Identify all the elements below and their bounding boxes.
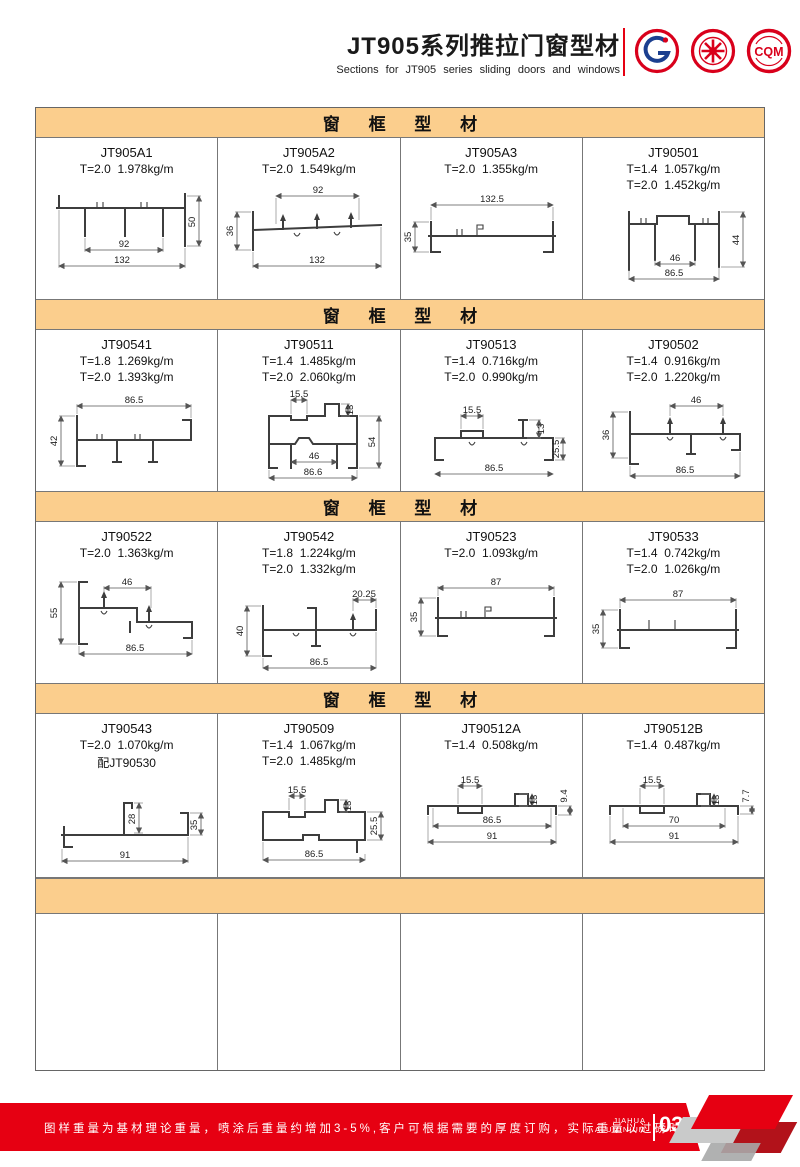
dimension-label: 87	[673, 589, 684, 600]
profile-spec: T=2.0 1.355kg/m	[401, 162, 582, 176]
profile-code: JT90522	[36, 529, 217, 544]
profile-drawing: 46 36 86.5	[583, 386, 763, 484]
dimension-label: 86.5	[124, 395, 143, 406]
profile-spec: T=2.0 2.060kg/m	[218, 370, 399, 384]
profile-spec: T=1.4 0.716kg/m	[401, 354, 582, 368]
dimension-label: 28	[127, 814, 138, 825]
profile-outline	[436, 598, 556, 636]
dimension-label: 86.6	[304, 467, 323, 478]
profile-outline	[263, 606, 376, 656]
certification-logos: CQM	[634, 28, 792, 74]
profile-cell: JT90513 T=1.4 0.716kg/m T=2.0 0.990kg/m	[401, 330, 583, 491]
profile-spec: 配JT90530	[36, 754, 217, 771]
profile-row: JT90541 T=1.8 1.269kg/m T=2.0 1.393kg/m …	[36, 330, 764, 492]
dimension-lines: 15.5 13 54 46 86.6	[269, 389, 381, 478]
profile-spec: T=2.0 0.990kg/m	[401, 370, 582, 384]
empty-row	[36, 914, 764, 1070]
dimension-label: 15.5	[463, 405, 482, 416]
profile-cell: JT90511 T=1.4 1.485kg/m T=2.0 2.060kg/m	[218, 330, 400, 491]
section-banner-empty	[36, 878, 764, 914]
section-banner: 窗 框 型 材	[36, 300, 764, 330]
profile-cell: JT905A2 T=2.0 1.549kg/m 92 36	[218, 138, 400, 299]
gb-certification-icon	[634, 28, 680, 74]
profile-spec: T=1.4 0.487kg/m	[583, 738, 764, 752]
profile-outline	[630, 412, 740, 464]
dimension-label: 35	[409, 612, 420, 623]
dimension-label: 42	[49, 436, 60, 447]
dimension-label: 132.5	[480, 194, 504, 205]
profile-cell: JT90523 T=2.0 1.093kg/m 87 35	[401, 522, 583, 683]
dimension-label: 44	[731, 235, 742, 246]
dimension-label: 46	[309, 451, 320, 462]
profile-cell: JT90512A T=1.4 0.508kg/m 15.5 13	[401, 714, 583, 877]
dimension-lines: 132.5 35	[403, 194, 553, 252]
profile-code: JT90513	[401, 337, 582, 352]
dimension-label: 35	[189, 820, 200, 831]
dimension-label: 20.25	[352, 589, 376, 600]
profile-spec: T=2.0 1.220kg/m	[583, 370, 764, 384]
dimension-label: 91	[669, 831, 680, 842]
profile-code: JT90512A	[401, 721, 582, 736]
dimension-label: 50	[187, 217, 198, 228]
profile-row: JT90543 T=2.0 1.070kg/m 配JT90530 28 35 9	[36, 714, 764, 878]
profile-outline	[79, 582, 192, 644]
dimension-lines: 15.5 13 25.5 86.5	[435, 405, 565, 474]
dimension-label: 86.5	[483, 815, 502, 826]
cqm-certification-icon: CQM	[746, 28, 792, 74]
section-banner-label: 窗 框 型 材	[311, 110, 489, 135]
dimension-label: 13	[343, 801, 354, 812]
profile-cell: JT90502 T=1.4 0.916kg/m T=2.0 1.220kg/m	[583, 330, 764, 491]
profile-drawing: 15.5 13 7.7 70 91	[583, 754, 763, 860]
profile-drawing: 15.5 13 25.5 86.5	[401, 386, 581, 484]
profile-row: JT905A1 T=2.0 1.978kg/m 92 132 50	[36, 138, 764, 300]
quality-seal-icon	[690, 28, 736, 74]
profile-spec: T=2.0 1.026kg/m	[583, 562, 764, 576]
profile-drawing: 87 35	[401, 562, 581, 668]
profile-code: JT90541	[36, 337, 217, 352]
dimension-label: 9.4	[559, 789, 570, 802]
dimension-label: 36	[601, 430, 612, 441]
footer-brand-bottom: ALUMINIUM	[584, 1125, 646, 1134]
section-banner-label: 窗 框 型 材	[311, 686, 489, 711]
profile-row: JT90522 T=2.0 1.363kg/m 46 55	[36, 522, 764, 684]
profile-drawing: 15.5 13 9.4 86.5 91	[401, 754, 581, 860]
profile-drawing: 15.5 13 54 46 86.6	[219, 386, 399, 486]
dimension-label: 25.5	[551, 440, 562, 459]
catalog-page: JT905系列推拉门窗型材 Sections for JT905 series …	[0, 0, 800, 1167]
dimension-label: 15.5	[290, 389, 309, 400]
profile-spec: T=1.8 1.224kg/m	[218, 546, 399, 560]
profile-drawing: 132.5 35	[401, 178, 581, 284]
dimension-label: 92	[118, 239, 129, 250]
footer-band: 图样重量为基材理论重量，喷涂后重量约增加3-5%,客户可根据需要的厚度订购，实际…	[0, 1103, 700, 1151]
dimension-label: 132	[114, 255, 130, 266]
footer-brand-top: JIAHUA	[584, 1116, 646, 1125]
profile-code: JT90512B	[583, 721, 764, 736]
profile-drawing: 86.5 42	[37, 386, 217, 478]
dimension-lines: 15.5 13 9.4 86.5 91	[428, 775, 572, 844]
dimension-label: 35	[403, 232, 414, 243]
profile-spec: T=2.0 1.093kg/m	[401, 546, 582, 560]
profile-drawing: 46 55 86.5	[37, 562, 217, 668]
cqm-logo-text: CQM	[754, 45, 783, 59]
profile-drawing: 15.5 13 25.5 86.5	[219, 770, 399, 870]
profile-code: JT90502	[583, 337, 764, 352]
profile-drawing: 92 36 132	[219, 178, 399, 284]
dimension-label: 36	[225, 226, 236, 237]
empty-cell	[36, 914, 218, 1070]
section-banner: 窗 框 型 材	[36, 108, 764, 138]
dimension-lines: 87 35	[591, 589, 736, 648]
dimension-label: 86.5	[485, 463, 504, 474]
dimension-lines: 15.5 13 7.7 70 91	[610, 775, 754, 844]
profile-cell: JT90533 T=1.4 0.742kg/m T=2.0 1.026kg/m …	[583, 522, 764, 683]
dimension-label: 15.5	[461, 775, 480, 786]
dimension-label: 86.5	[310, 657, 329, 668]
page-header: JT905系列推拉门窗型材 Sections for JT905 series …	[200, 26, 620, 76]
profile-catalog-table: 窗 框 型 材 JT905A1 T=2.0 1.978kg/m 9	[35, 107, 765, 1071]
profile-code: JT90533	[583, 529, 764, 544]
profile-drawing: 20.25 40 86.5	[219, 578, 399, 676]
profile-outline	[253, 212, 381, 250]
profile-code: JT90509	[218, 721, 399, 736]
profile-code: JT90542	[218, 529, 399, 544]
profile-outline	[77, 416, 191, 466]
dimension-label: 46	[691, 395, 702, 406]
dimension-label: 13	[536, 424, 547, 435]
profile-spec: T=2.0 1.452kg/m	[583, 178, 764, 192]
profile-code: JT90523	[401, 529, 582, 544]
dimension-label: 86.5	[305, 849, 324, 860]
profile-spec: T=2.0 1.070kg/m	[36, 738, 217, 752]
empty-cell	[401, 914, 583, 1070]
dimension-label: 55	[49, 608, 60, 619]
profile-code: JT905A1	[36, 145, 217, 160]
dimension-label: 86.5	[676, 465, 695, 476]
profile-outline	[429, 222, 555, 252]
profile-spec: T=1.4 1.057kg/m	[583, 162, 764, 176]
profile-drawing: 46 86.5 44	[583, 194, 763, 286]
dimension-label: 25.5	[369, 817, 380, 836]
profile-spec: T=1.4 0.742kg/m	[583, 546, 764, 560]
profile-code: JT90543	[36, 721, 217, 736]
dimension-label: 46	[121, 577, 132, 588]
profile-outline	[62, 803, 188, 847]
profile-spec: T=2.0 1.363kg/m	[36, 546, 217, 560]
profile-cell: JT905A3 T=2.0 1.355kg/m 132.5 35	[401, 138, 583, 299]
empty-cell	[218, 914, 400, 1070]
dimension-lines: 46 36 86.5	[601, 395, 740, 476]
dimension-label: 35	[591, 624, 602, 635]
profile-cell: JT905A1 T=2.0 1.978kg/m 92 132 50	[36, 138, 218, 299]
profile-cell: JT90543 T=2.0 1.070kg/m 配JT90530 28 35 9	[36, 714, 218, 877]
profile-cell: JT90522 T=2.0 1.363kg/m 46 55	[36, 522, 218, 683]
dimension-lines: 87 35	[409, 577, 554, 636]
profile-cell: JT90501 T=1.4 1.057kg/m T=2.0 1.452kg/m …	[583, 138, 764, 299]
profile-code: JT90511	[218, 337, 399, 352]
footer-brand-divider	[653, 1114, 655, 1141]
dimension-label: 7.7	[741, 789, 752, 802]
section-banner: 窗 框 型 材	[36, 492, 764, 522]
header-divider	[623, 28, 625, 76]
dimension-lines: 86.5 42	[49, 395, 191, 466]
dimension-label: 91	[487, 831, 498, 842]
dimension-label: 13	[711, 795, 722, 806]
profile-drawing: 87 35	[583, 578, 763, 670]
profile-spec: T=2.0 1.393kg/m	[36, 370, 217, 384]
dimension-label: 91	[119, 850, 130, 861]
dimension-label: 15.5	[643, 775, 662, 786]
profile-outline	[618, 610, 738, 648]
profile-drawing: 28 35 91	[37, 773, 217, 873]
profile-cell: JT90512B T=1.4 0.487kg/m 15.5 13	[583, 714, 764, 877]
dimension-label: 132	[309, 255, 325, 266]
dimension-label: 86.5	[665, 268, 684, 279]
section-banner: 窗 框 型 材	[36, 684, 764, 714]
footer-brand: JIAHUA ALUMINIUM	[584, 1116, 646, 1134]
profile-spec: T=2.0 1.978kg/m	[36, 162, 217, 176]
section-banner-label: 窗 框 型 材	[311, 302, 489, 327]
dimension-label: 13	[529, 795, 540, 806]
footer-decoration-gray-small	[701, 1143, 761, 1161]
dimension-label: 92	[313, 185, 324, 196]
profile-spec: T=1.8 1.269kg/m	[36, 354, 217, 368]
profile-code: JT905A2	[218, 145, 399, 160]
section-banner-label: 窗 框 型 材	[311, 494, 489, 519]
profile-spec: T=1.4 1.485kg/m	[218, 354, 399, 368]
profile-code: JT905A3	[401, 145, 582, 160]
dimension-lines: 92 132 50	[59, 196, 201, 268]
empty-cell	[583, 914, 764, 1070]
dimension-label: 86.5	[125, 643, 144, 654]
dimension-label: 46	[670, 253, 681, 264]
page-subtitle: Sections for JT905 series sliding doors …	[200, 64, 620, 76]
profile-cell: JT90541 T=1.8 1.269kg/m T=2.0 1.393kg/m …	[36, 330, 218, 491]
profile-spec: T=1.4 0.508kg/m	[401, 738, 582, 752]
profile-spec: T=2.0 1.485kg/m	[218, 754, 399, 768]
dimension-label: 15.5	[288, 785, 307, 796]
dimension-label: 13	[345, 405, 356, 416]
profile-code: JT90501	[583, 145, 764, 160]
profile-spec: T=1.4 0.916kg/m	[583, 354, 764, 368]
profile-cell: JT90509 T=1.4 1.067kg/m T=2.0 1.485kg/m …	[218, 714, 400, 877]
profile-cell: JT90542 T=1.8 1.224kg/m T=2.0 1.332kg/m	[218, 522, 400, 683]
profile-spec: T=2.0 1.549kg/m	[218, 162, 399, 176]
dimension-label: 70	[669, 815, 680, 826]
dimension-lines: 20.25 40 86.5	[235, 589, 376, 668]
profile-drawing: 92 132 50	[37, 178, 217, 284]
dimension-label: 87	[491, 577, 502, 588]
page-title: JT905系列推拉门窗型材	[200, 26, 620, 61]
profile-spec: T=2.0 1.332kg/m	[218, 562, 399, 576]
dimension-lines: 46 55 86.5	[49, 577, 192, 654]
dimension-label: 54	[367, 437, 378, 448]
profile-spec: T=1.4 1.067kg/m	[218, 738, 399, 752]
dimension-label: 40	[235, 626, 246, 637]
